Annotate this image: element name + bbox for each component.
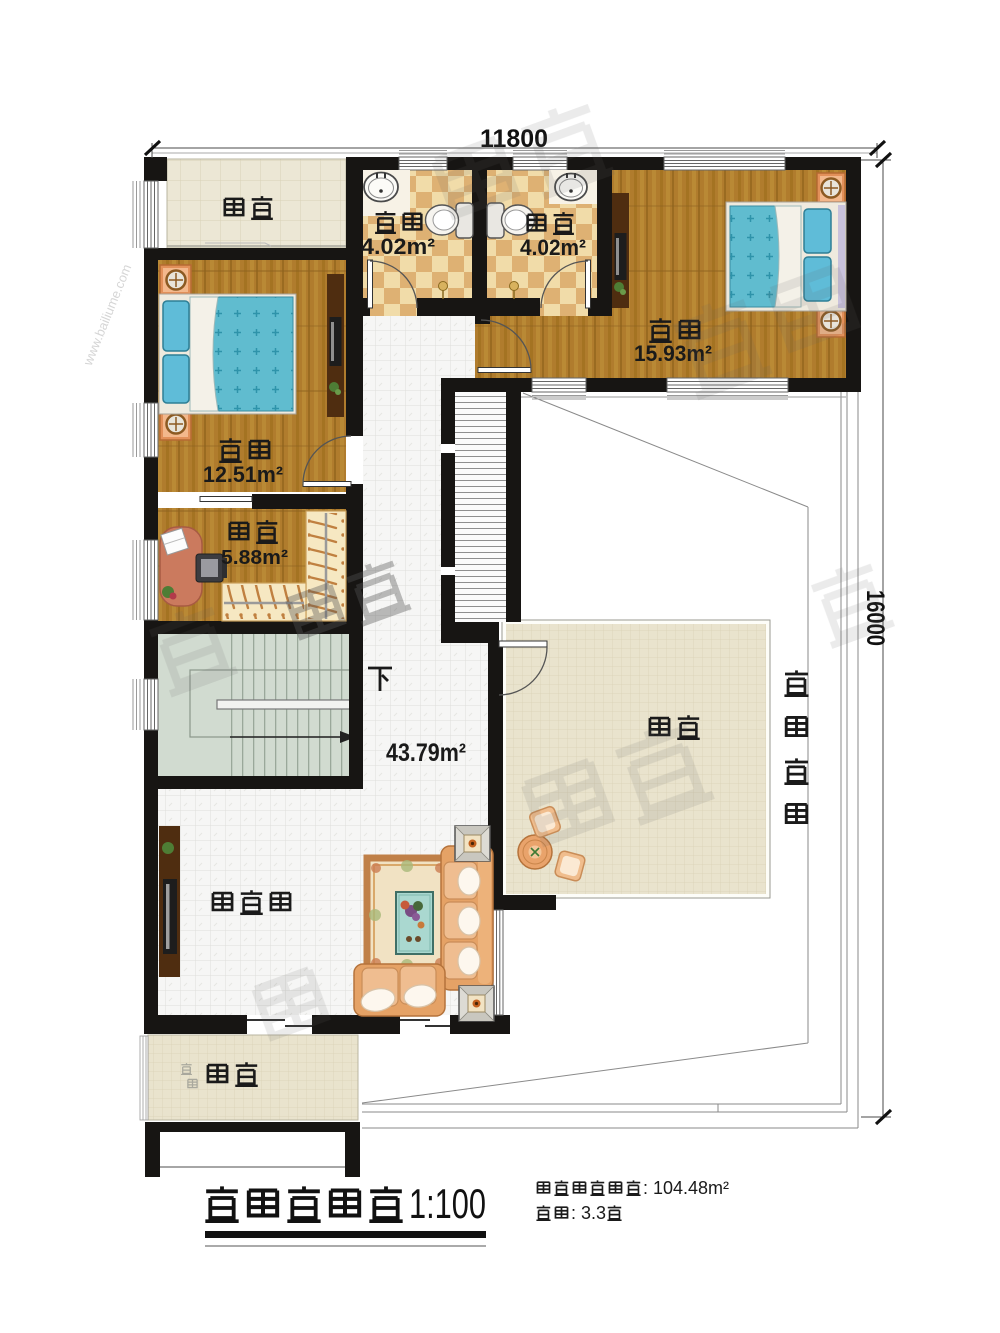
svg-text:4.02m²: 4.02m² <box>361 234 435 259</box>
svg-text:: 3.3: : 3.3 <box>571 1203 606 1223</box>
svg-text:1:100: 1:100 <box>409 1180 486 1227</box>
svg-text:43.79m²: 43.79m² <box>386 739 466 767</box>
svg-text:12.51m²: 12.51m² <box>203 462 283 487</box>
svg-text:5.88m²: 5.88m² <box>221 547 288 569</box>
svg-text:: 104.48m²: : 104.48m² <box>643 1178 729 1198</box>
svg-text:4.02m²: 4.02m² <box>520 235 586 260</box>
